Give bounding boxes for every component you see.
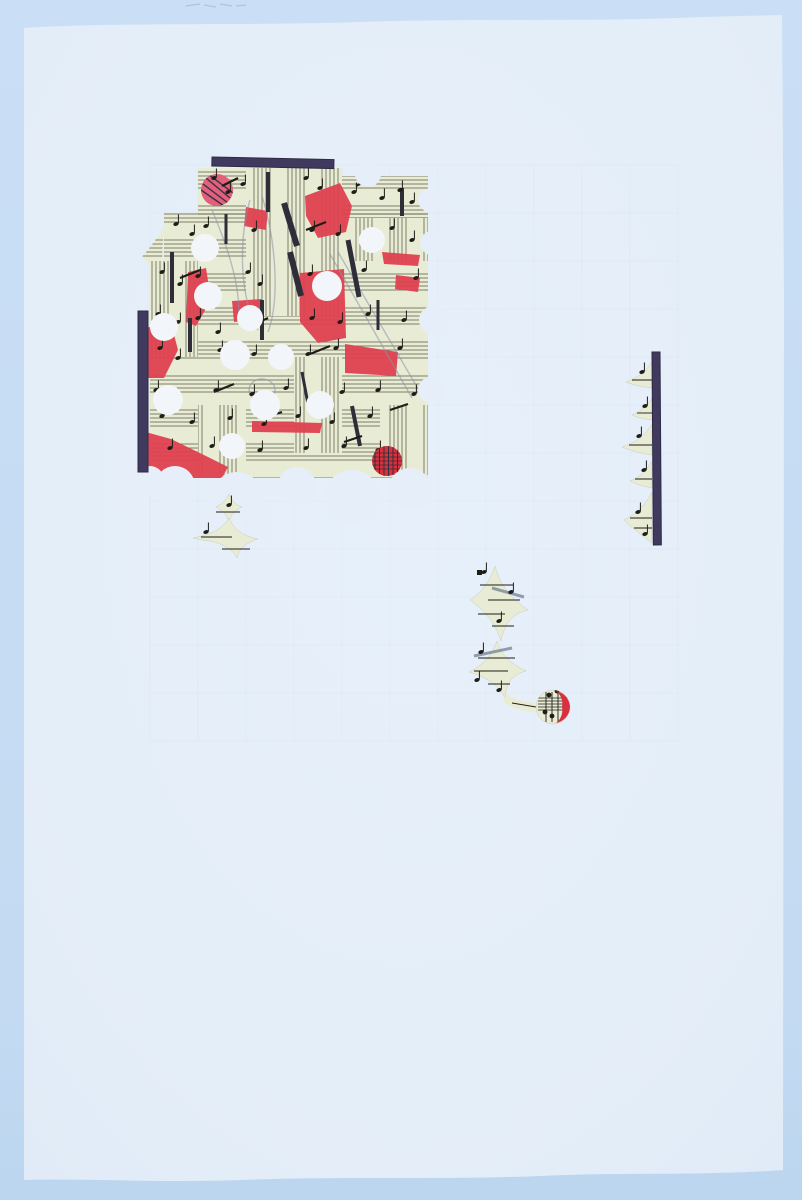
collage-artwork: [0, 0, 802, 1200]
punched-hole: [220, 340, 250, 370]
punched-hole: [237, 305, 263, 331]
edge-bite: [418, 188, 442, 212]
edge-bite: [325, 470, 379, 524]
punched-hole: [306, 391, 334, 419]
note-head: [550, 714, 555, 719]
punched-hole: [194, 282, 222, 310]
punched-hole: [219, 433, 245, 459]
dark-bar-left: [138, 311, 148, 472]
note-head: [547, 693, 552, 698]
dark-bar-right: [652, 352, 661, 545]
punched-hole: [250, 390, 280, 420]
edge-bite: [355, 161, 381, 187]
edge-bite: [419, 306, 447, 334]
ink-dot: [477, 570, 482, 575]
punched-hole: [359, 227, 385, 253]
punched-hole: [191, 234, 219, 262]
edge-bite: [420, 231, 444, 255]
artwork-photo: [0, 0, 802, 1200]
edge-bite: [278, 467, 316, 505]
punched-hole: [153, 385, 183, 415]
staff-lines: [342, 176, 428, 218]
punched-hole: [312, 271, 342, 301]
edge-bite: [418, 377, 444, 403]
edge-bite: [389, 468, 431, 510]
note-head: [543, 710, 548, 715]
punched-hole: [150, 313, 178, 341]
edge-bite: [212, 472, 262, 522]
dark-bar-top: [212, 157, 334, 169]
punched-hole: [268, 344, 294, 370]
